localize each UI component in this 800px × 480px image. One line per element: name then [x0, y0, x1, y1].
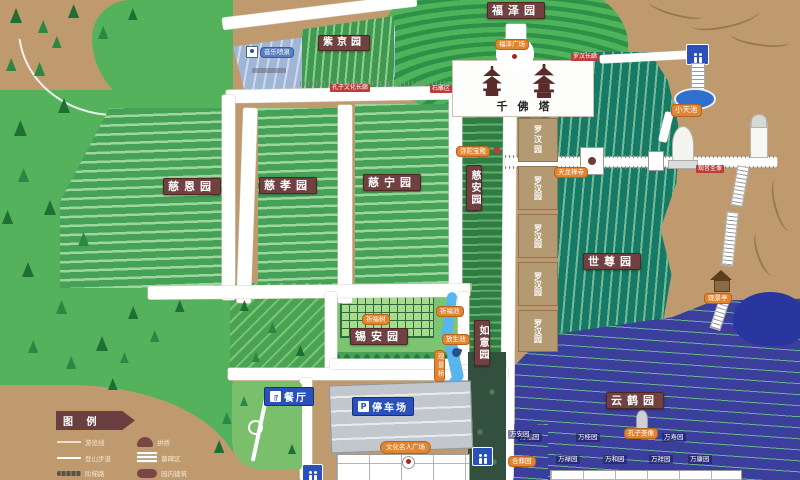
pine-tree-icon [38, 20, 48, 33]
label-qifu-tree: 祈福树 [362, 314, 390, 325]
pine-tree-icon [6, 58, 16, 71]
luohan-label: 罗汉园 [533, 319, 544, 343]
restaurant-sign: ╔ 餐厅 [264, 387, 314, 406]
label-fountain: 音乐喷泉 [260, 47, 294, 58]
garden-label-ruyi: 如意园 [474, 320, 490, 366]
restroom-icon [472, 447, 493, 466]
label-tianlong: 天龙禅寺 [554, 167, 588, 178]
stairs [691, 63, 705, 91]
road-v3 [449, 98, 462, 310]
legend-item: 墓碑区 [137, 452, 215, 463]
pavilion-icon [710, 270, 732, 280]
fountain-circle [248, 420, 263, 435]
legend-item: 拱桥 [137, 437, 215, 447]
legend-item: 园内建筑 [137, 468, 215, 478]
qianfota-label: 千佛塔 [453, 98, 593, 114]
stairs [721, 212, 739, 267]
label-plaza: 文化名人广场 [380, 441, 431, 454]
legend: 游览线 拱桥 登山步道 墓碑区 阶梯路 园内建筑 [57, 437, 215, 478]
yunhe-pond [733, 292, 800, 346]
pine-tree-icon [68, 4, 79, 18]
fountain-icon [246, 46, 258, 58]
legend-title: 图 例 [56, 411, 135, 430]
zijing-info-bar [252, 68, 286, 73]
kongzi-statue [636, 410, 648, 430]
stairs [731, 165, 750, 206]
restaurant-icon: ╔ [270, 391, 281, 402]
thin-line-symbol [57, 441, 81, 443]
road-v1 [237, 108, 258, 303]
luohan-label: 罗汉园 [532, 121, 545, 159]
legend-label: 墓碑区 [161, 453, 181, 463]
label-fuze-plaza: 福泽广场 [495, 39, 529, 50]
legend-label: 阶梯路 [85, 468, 105, 478]
garden-label-yunhe: 云鹤园 [606, 392, 664, 409]
brown-block-symbol [137, 469, 157, 478]
parking-sign: P 停车场 [352, 397, 414, 416]
stall-row [550, 470, 742, 480]
legend-label: 园内建筑 [161, 468, 187, 478]
pagoda-icon [479, 66, 505, 96]
label-bridge: 观景桥 [434, 350, 445, 382]
garden-label-zijing: 紫京园 [318, 35, 370, 51]
label-fangsheng: 放生池 [442, 334, 470, 345]
grave-rows-top [302, 16, 394, 90]
legend-item: 阶梯路 [57, 468, 131, 478]
restroom-icon [302, 464, 323, 480]
contour-line [750, 230, 781, 279]
statue-base [668, 160, 698, 169]
luohan-block: 罗汉园 [518, 262, 558, 306]
restaurant-label: 餐厅 [284, 389, 308, 404]
luohan-block: 罗汉园 [518, 118, 558, 162]
pavilion-body [714, 280, 730, 292]
legend-label: 登山步道 [85, 453, 111, 463]
pine-tree-icon [52, 36, 62, 48]
road-h3 [228, 368, 508, 380]
contour-line [729, 26, 791, 50]
label-wangui: 万桂园 [576, 433, 600, 442]
label-wanhe: 万和园 [603, 455, 627, 464]
arch-symbol [137, 437, 153, 447]
garden-label-xian: 锡安园 [350, 328, 408, 345]
road-v2 [338, 105, 352, 303]
plaza-marker [402, 456, 415, 469]
cixiao-plot [258, 108, 338, 300]
luohan-label: 罗汉园 [533, 224, 544, 248]
park-map: 罗汉园 罗汉园 罗汉园 罗汉园 罗汉园 千佛塔 [0, 0, 800, 480]
label-wanlu: 万禄园 [556, 455, 580, 464]
label-wanxiang: 万祥园 [649, 455, 673, 464]
label-guanyin: 观音圣像 [696, 165, 724, 173]
road-v-left [222, 95, 235, 300]
tower-dome [751, 114, 767, 128]
legend-item: 登山步道 [57, 452, 131, 463]
contour-line [767, 177, 798, 234]
plaza-dot [512, 54, 517, 59]
legend-label: 游览线 [85, 437, 105, 447]
cining-plot [355, 104, 449, 304]
dark-bar-symbol [57, 471, 81, 476]
luohan-block: 罗汉园 [518, 166, 558, 210]
legend-label: 拱桥 [157, 437, 170, 447]
label-kongzi: 孔子圣像 [624, 428, 658, 439]
label-corridor: 孔子文化长廊 [330, 84, 370, 92]
garden-label-cixiao: 慈孝园 [259, 177, 317, 194]
label-wankang: 万康园 [688, 455, 712, 464]
label-pavilion: 观景亭 [704, 293, 732, 304]
luohan-label: 罗汉园 [533, 176, 544, 200]
corridor-pavilion-small [648, 151, 664, 171]
garden-label-fuze: 福泽园 [487, 2, 545, 19]
label-shidiao: 石雕区 [430, 85, 452, 93]
restroom-icon [686, 44, 709, 65]
garden-label-cien: 慈恩园 [163, 178, 221, 195]
label-luohan-corridor: 罗汉长廊 [571, 53, 599, 61]
garden-label-cian: 慈安园 [466, 165, 482, 211]
label-hezang: 合葬园 [508, 456, 536, 467]
parking-icon: P [358, 401, 369, 412]
label-qifu-pool: 祈福池 [436, 306, 464, 317]
luohan-block: 罗汉园 [518, 214, 558, 258]
luohan-label: 罗汉园 [533, 272, 544, 296]
guanyin-statue [672, 126, 694, 164]
label-mituo: 弥陀宝殿 [456, 146, 490, 157]
pagoda-icon [529, 64, 559, 98]
white-line-symbol [57, 457, 81, 459]
legend-item: 游览线 [57, 437, 131, 447]
red-dot [494, 147, 500, 153]
garden-label-shizun: 世尊园 [583, 253, 641, 270]
striped-block-symbol [137, 452, 157, 463]
garden-label-cining: 慈宁园 [363, 174, 421, 191]
pine-tree-icon [10, 8, 22, 23]
label-wanan: 万安园 [508, 430, 532, 439]
luohan-block: 罗汉园 [518, 310, 558, 352]
parking-label: 停车场 [372, 399, 408, 414]
label-xiaotianchi: 小天池 [671, 104, 702, 117]
label-wanshou: 万寿园 [662, 433, 686, 442]
